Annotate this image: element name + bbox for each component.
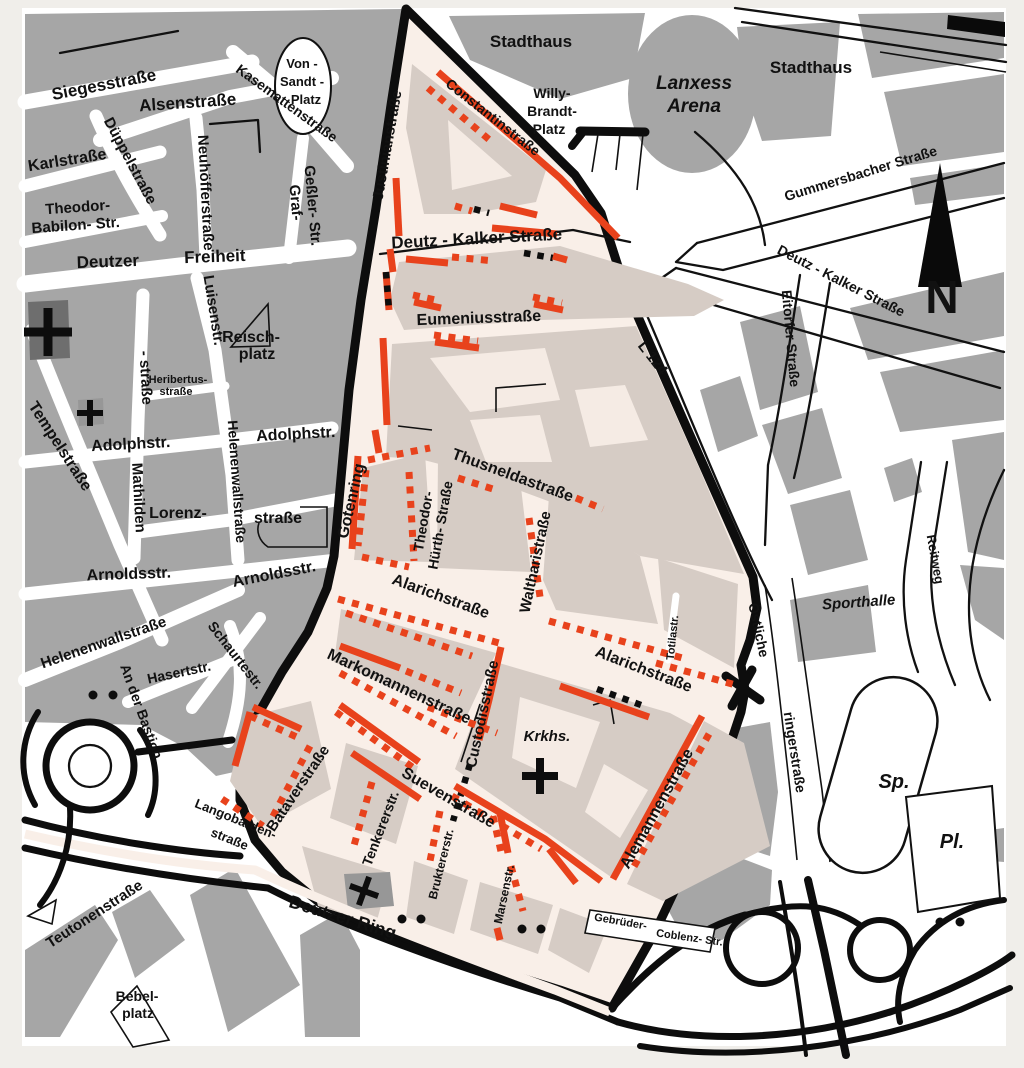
label-platz: Platz — [533, 121, 566, 137]
label-reisch: Reisch- — [222, 329, 280, 346]
label-deutzer: Deutzer — [76, 251, 139, 272]
label-heribertus: Heribertus- — [149, 374, 208, 386]
label-lanxess: Lanxess — [656, 73, 732, 94]
map-dot — [936, 918, 945, 927]
map-dot — [398, 915, 407, 924]
label-graf: Graf- — [285, 184, 305, 221]
label-platz: platz — [122, 1005, 154, 1021]
label-n: N — [925, 271, 958, 323]
label-krkhs: Krkhs. — [524, 728, 571, 745]
label-lorenz: Lorenz- — [149, 505, 207, 522]
map-dot — [109, 691, 118, 700]
label-arena: Arena — [666, 96, 721, 117]
label-stadthaus: Stadthaus — [770, 58, 852, 77]
label-platz: Platz — [291, 92, 322, 107]
label-arnoldsstr: Arnoldsstr. — [86, 565, 171, 585]
map-dot — [89, 691, 98, 700]
label-platz: platz — [239, 346, 275, 363]
map-dot — [537, 925, 546, 934]
label-willy: Willy- — [533, 85, 571, 101]
lanxess-arena-building — [628, 15, 756, 173]
label-sp: Sp. — [878, 771, 909, 793]
label-brandt: Brandt- — [527, 103, 577, 119]
map-dot — [417, 915, 426, 924]
map-page: SiegesstraßeAlsenstraßeKasemattenstraßeV… — [0, 0, 1024, 1068]
label-von: Von - — [286, 56, 318, 71]
map-dot — [956, 918, 965, 927]
label-bebel: Bebel- — [116, 988, 159, 1004]
label-pl: Pl. — [940, 831, 964, 853]
city-map: SiegesstraßeAlsenstraßeKasemattenstraßeV… — [0, 0, 1024, 1068]
label-stra-e: straße — [254, 510, 302, 527]
label-sandt: Sandt - — [280, 74, 324, 89]
label-stra-e: - straße — [136, 350, 156, 405]
label-stadthaus: Stadthaus — [490, 32, 572, 51]
map-dot — [518, 925, 527, 934]
label-freiheit: Freiheit — [184, 246, 246, 267]
label-stra-e: straße — [159, 386, 192, 398]
